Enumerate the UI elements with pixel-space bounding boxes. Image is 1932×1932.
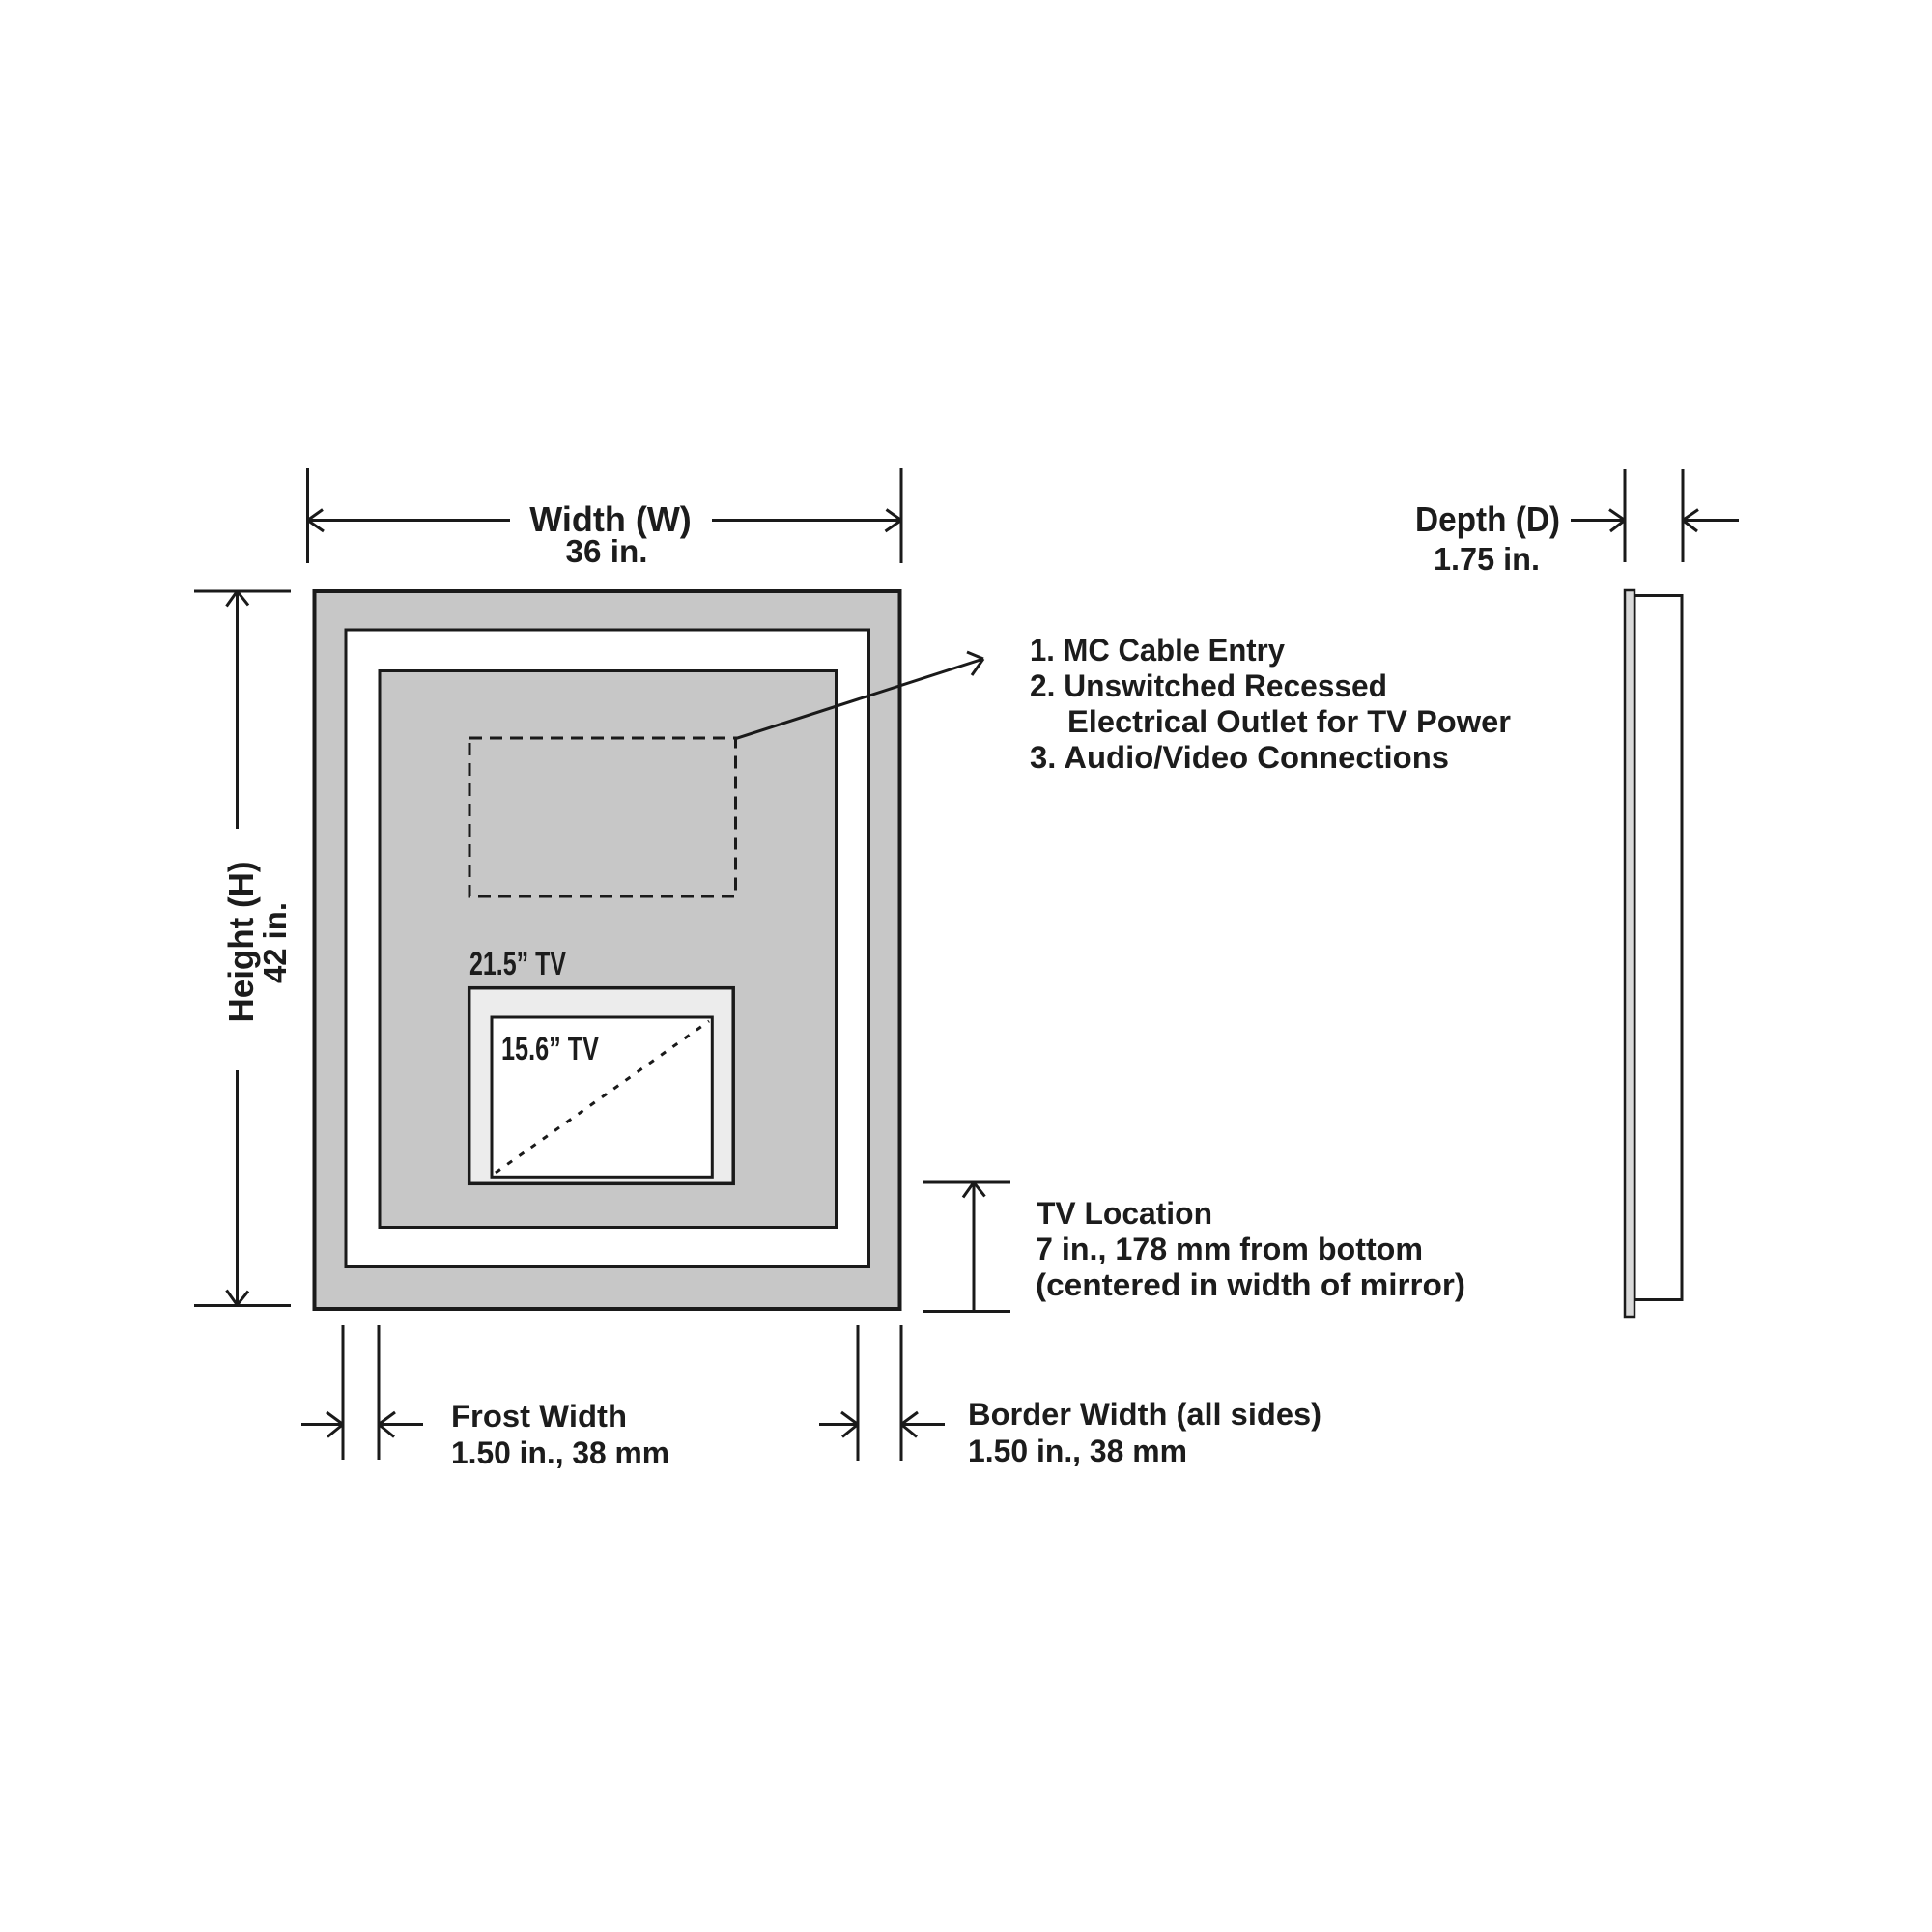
svg-text:36 in.: 36 in. [566, 533, 648, 569]
svg-text:TV Location: TV Location [1037, 1196, 1212, 1231]
svg-text:Border Width (all sides): Border Width (all sides) [968, 1397, 1321, 1432]
svg-text:42 in.: 42 in. [257, 902, 293, 983]
svg-text:3. Audio/Video Connections: 3. Audio/Video Connections [1030, 740, 1449, 775]
svg-text:2. Unswitched Recessed: 2. Unswitched Recessed [1030, 668, 1387, 703]
svg-text:21.5” TV: 21.5” TV [469, 946, 566, 982]
svg-text:1.75 in.: 1.75 in. [1434, 541, 1540, 577]
svg-text:15.6” TV: 15.6” TV [501, 1031, 599, 1067]
svg-text:1.50 in., 38 mm: 1.50 in., 38 mm [968, 1434, 1187, 1468]
svg-text:7 in., 178 mm from bottom: 7 in., 178 mm from bottom [1036, 1232, 1423, 1266]
svg-text:Electrical Outlet for TV Power: Electrical Outlet for TV Power [1067, 704, 1511, 739]
svg-text:(centered in width of mirror): (centered in width of mirror) [1036, 1267, 1465, 1302]
svg-text:1. MC Cable Entry: 1. MC Cable Entry [1030, 633, 1285, 668]
svg-text:1.50 in., 38 mm: 1.50 in., 38 mm [451, 1435, 669, 1470]
svg-text:Height (H): Height (H) [221, 862, 261, 1023]
svg-text:Frost Width: Frost Width [451, 1399, 627, 1434]
svg-text:Depth (D): Depth (D) [1415, 499, 1560, 539]
